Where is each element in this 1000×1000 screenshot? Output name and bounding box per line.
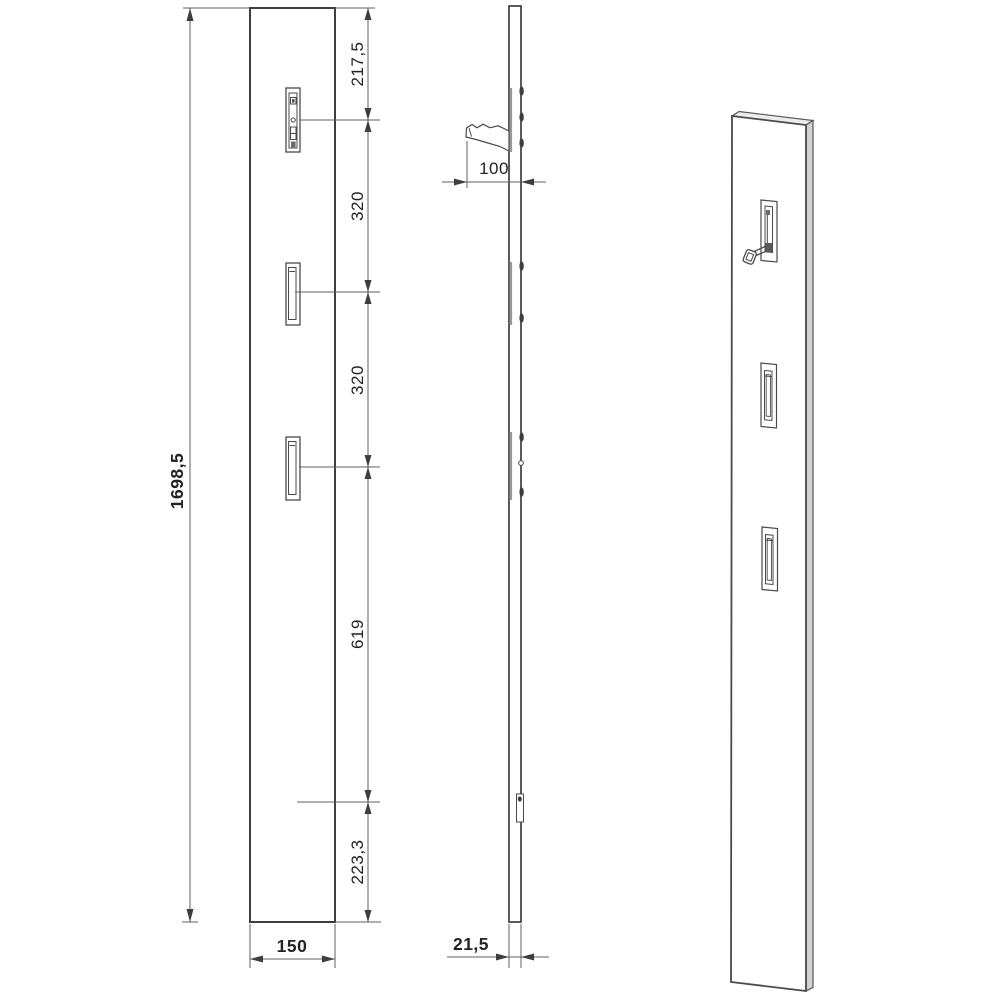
rear-wall-rail-bracket xyxy=(517,794,524,822)
hook-slot-2-3d xyxy=(761,363,777,428)
arrow-down-end xyxy=(365,910,372,922)
arrow-right xyxy=(322,956,335,963)
dimension-total-height: 1698,5 xyxy=(167,8,250,922)
arrow-up xyxy=(365,802,372,814)
slot-inner xyxy=(766,535,774,585)
slot-inner xyxy=(765,371,773,421)
coat-rack-panel-technical-drawing: 1698,5 217,5 320 320 619 223,3 xyxy=(0,0,1000,1000)
dimension-hook-projection: 100 xyxy=(442,141,546,188)
drawing-page: 1698,5 217,5 320 320 619 223,3 xyxy=(0,0,1000,1000)
bump xyxy=(519,432,523,441)
coat-hook-profile xyxy=(466,124,509,151)
bump xyxy=(519,86,523,95)
arrow-up-end xyxy=(365,8,372,20)
slot-inner xyxy=(289,268,297,320)
front-view xyxy=(250,8,380,922)
hook-screw xyxy=(291,118,295,122)
hook-base xyxy=(766,243,773,252)
arrow-up xyxy=(187,8,194,21)
arrow-down xyxy=(365,280,372,292)
side-view xyxy=(466,6,524,922)
dim-label-segment-3: 320 xyxy=(348,365,367,395)
dim-label-segment-4: 619 xyxy=(348,619,367,649)
dim-label-segment-1: 217,5 xyxy=(348,41,367,86)
bump xyxy=(519,138,523,147)
hook-catch-pin xyxy=(292,99,295,102)
slot-inner xyxy=(289,442,297,495)
dimension-width: 150 xyxy=(250,924,335,968)
dimension-thickness: 21,5 xyxy=(447,924,549,968)
dim-label-total-height: 1698,5 xyxy=(167,453,187,510)
dim-label-segment-2: 320 xyxy=(348,191,367,221)
arrow-left xyxy=(496,954,509,961)
arrow-up xyxy=(365,292,372,304)
hook-slot-3-3d xyxy=(762,527,778,591)
arrow-up xyxy=(365,467,372,479)
arrow-down xyxy=(365,455,372,467)
arrow-down xyxy=(365,108,372,120)
arrow-left xyxy=(454,179,467,186)
dim-label-width: 150 xyxy=(277,936,308,956)
slot-top-tick xyxy=(765,376,772,377)
dimension-chain-segments: 217,5 320 320 619 223,3 xyxy=(335,8,381,922)
arrow-down xyxy=(187,909,194,922)
bump-ring xyxy=(519,461,524,466)
arrow-right xyxy=(521,954,534,961)
panel-right-edge xyxy=(806,121,813,992)
bump xyxy=(519,112,523,121)
hook-catch xyxy=(766,210,770,215)
arrow-down xyxy=(365,790,372,802)
perspective-view xyxy=(731,112,813,992)
slot-top-tick xyxy=(766,540,773,541)
dim-label-hook-projection: 100 xyxy=(479,159,509,178)
bracket-pin xyxy=(518,796,522,801)
dim-label-thickness: 21,5 xyxy=(453,934,489,954)
bump xyxy=(519,313,523,322)
hook-slot-3 xyxy=(286,437,300,500)
bump xyxy=(519,261,523,270)
arrow-left xyxy=(250,956,263,963)
hook-foot xyxy=(291,142,296,148)
bump xyxy=(519,487,523,496)
arrow-up xyxy=(365,120,372,132)
dim-label-segment-5: 223,3 xyxy=(348,839,367,884)
hook-slot-2 xyxy=(286,263,300,325)
hook-slot-1 xyxy=(286,88,300,152)
arrow-right xyxy=(521,179,534,186)
